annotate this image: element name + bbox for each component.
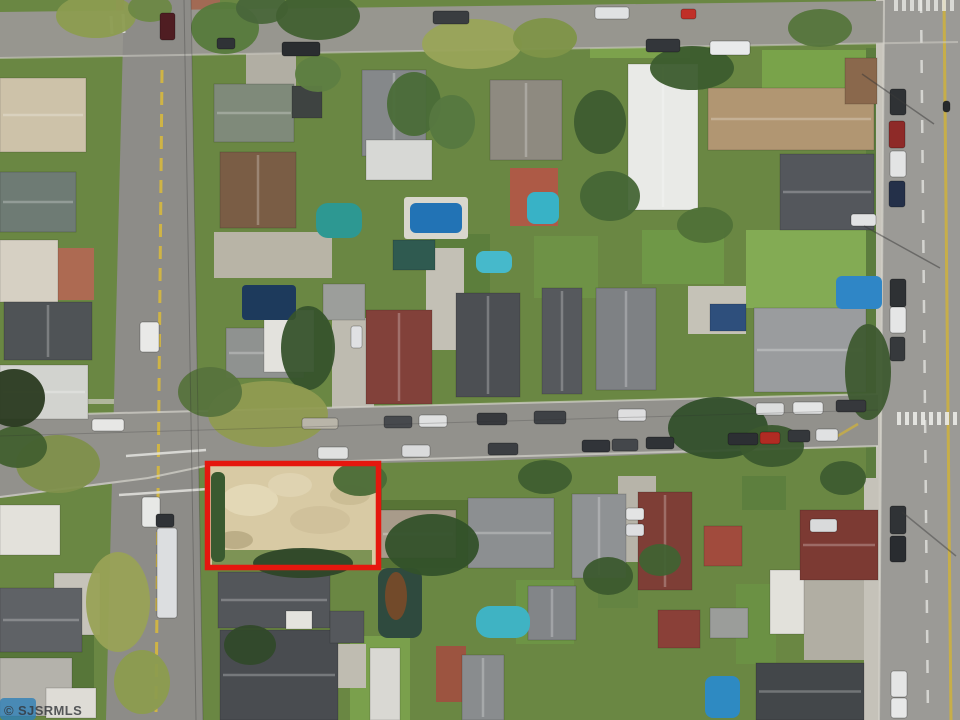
mls-watermark: © SJSRMLS [4, 703, 82, 718]
aerial-photo-of-neighborhood: © SJSRMLS [0, 0, 960, 720]
aerial-scene [0, 0, 960, 720]
